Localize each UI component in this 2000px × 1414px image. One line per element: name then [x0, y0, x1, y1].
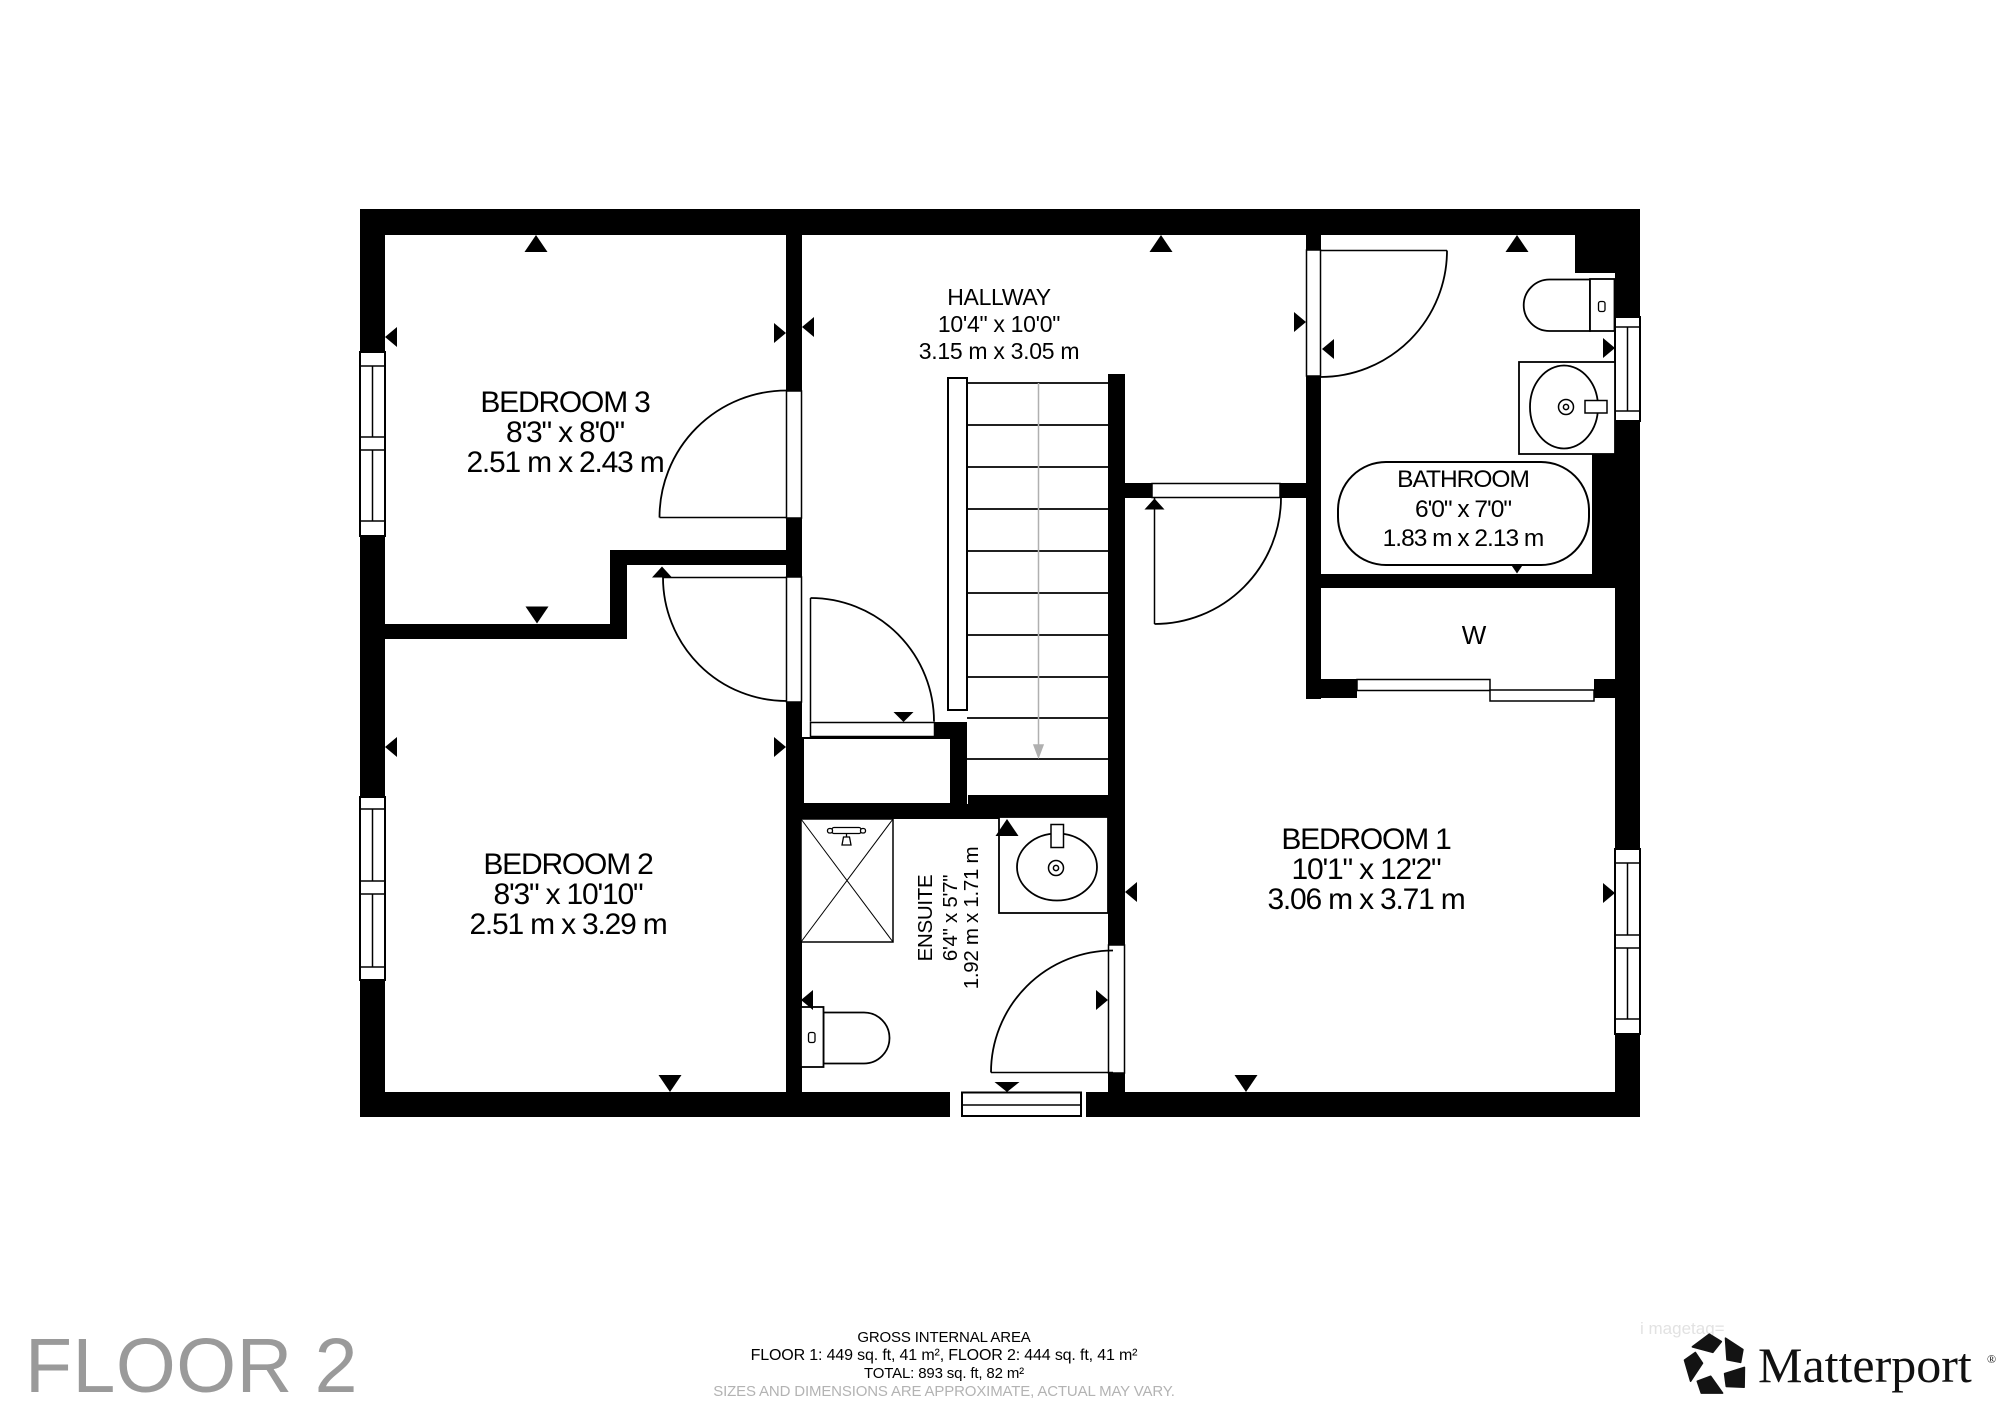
svg-text:8'3" x 8'0": 8'3" x 8'0" — [506, 416, 625, 449]
svg-text:TOTAL: 893 sq. ft, 82 m²: TOTAL: 893 sq. ft, 82 m² — [864, 1365, 1024, 1382]
svg-text:HALLWAY: HALLWAY — [947, 284, 1051, 310]
svg-text:1.83 m x 2.13 m: 1.83 m x 2.13 m — [1383, 525, 1544, 552]
svg-text:SIZES AND DIMENSIONS ARE APPRO: SIZES AND DIMENSIONS ARE APPROXIMATE, AC… — [713, 1383, 1174, 1400]
svg-text:W: W — [1462, 620, 1487, 650]
svg-text:6'0" x 7'0": 6'0" x 7'0" — [1415, 496, 1511, 523]
svg-text:FLOOR 2: FLOOR 2 — [25, 1323, 358, 1409]
svg-text:ENSUITE: ENSUITE — [914, 875, 937, 962]
svg-text:10'1" x 12'2": 10'1" x 12'2" — [1292, 853, 1441, 886]
svg-text:3.06 m x 3.71 m: 3.06 m x 3.71 m — [1267, 883, 1464, 916]
svg-text:FLOOR 1: 449 sq. ft, 41 m², FL: FLOOR 1: 449 sq. ft, 41 m², FLOOR 2: 444… — [751, 1347, 1139, 1364]
svg-text:BATHROOM: BATHROOM — [1397, 466, 1529, 493]
svg-text:2.51 m x 2.43 m: 2.51 m x 2.43 m — [466, 446, 663, 479]
svg-text:BEDROOM 2: BEDROOM 2 — [483, 848, 653, 881]
svg-text:BEDROOM 1: BEDROOM 1 — [1281, 823, 1451, 856]
svg-text:8'3" x 10'10": 8'3" x 10'10" — [494, 878, 643, 911]
svg-text:2.51 m x 3.29 m: 2.51 m x 3.29 m — [469, 908, 666, 941]
svg-text:GROSS INTERNAL AREA: GROSS INTERNAL AREA — [857, 1329, 1030, 1346]
svg-text:®: ® — [1987, 1352, 1996, 1366]
svg-text:6'4" x 5'7": 6'4" x 5'7" — [939, 875, 962, 961]
svg-text:Matterport: Matterport — [1758, 1337, 1972, 1393]
svg-text:1.92 m x 1.71 m: 1.92 m x 1.71 m — [960, 847, 983, 989]
svg-text:BEDROOM 3: BEDROOM 3 — [480, 386, 650, 419]
svg-text:10'4" x 10'0": 10'4" x 10'0" — [938, 311, 1060, 337]
svg-text:3.15 m x 3.05 m: 3.15 m x 3.05 m — [919, 338, 1079, 364]
